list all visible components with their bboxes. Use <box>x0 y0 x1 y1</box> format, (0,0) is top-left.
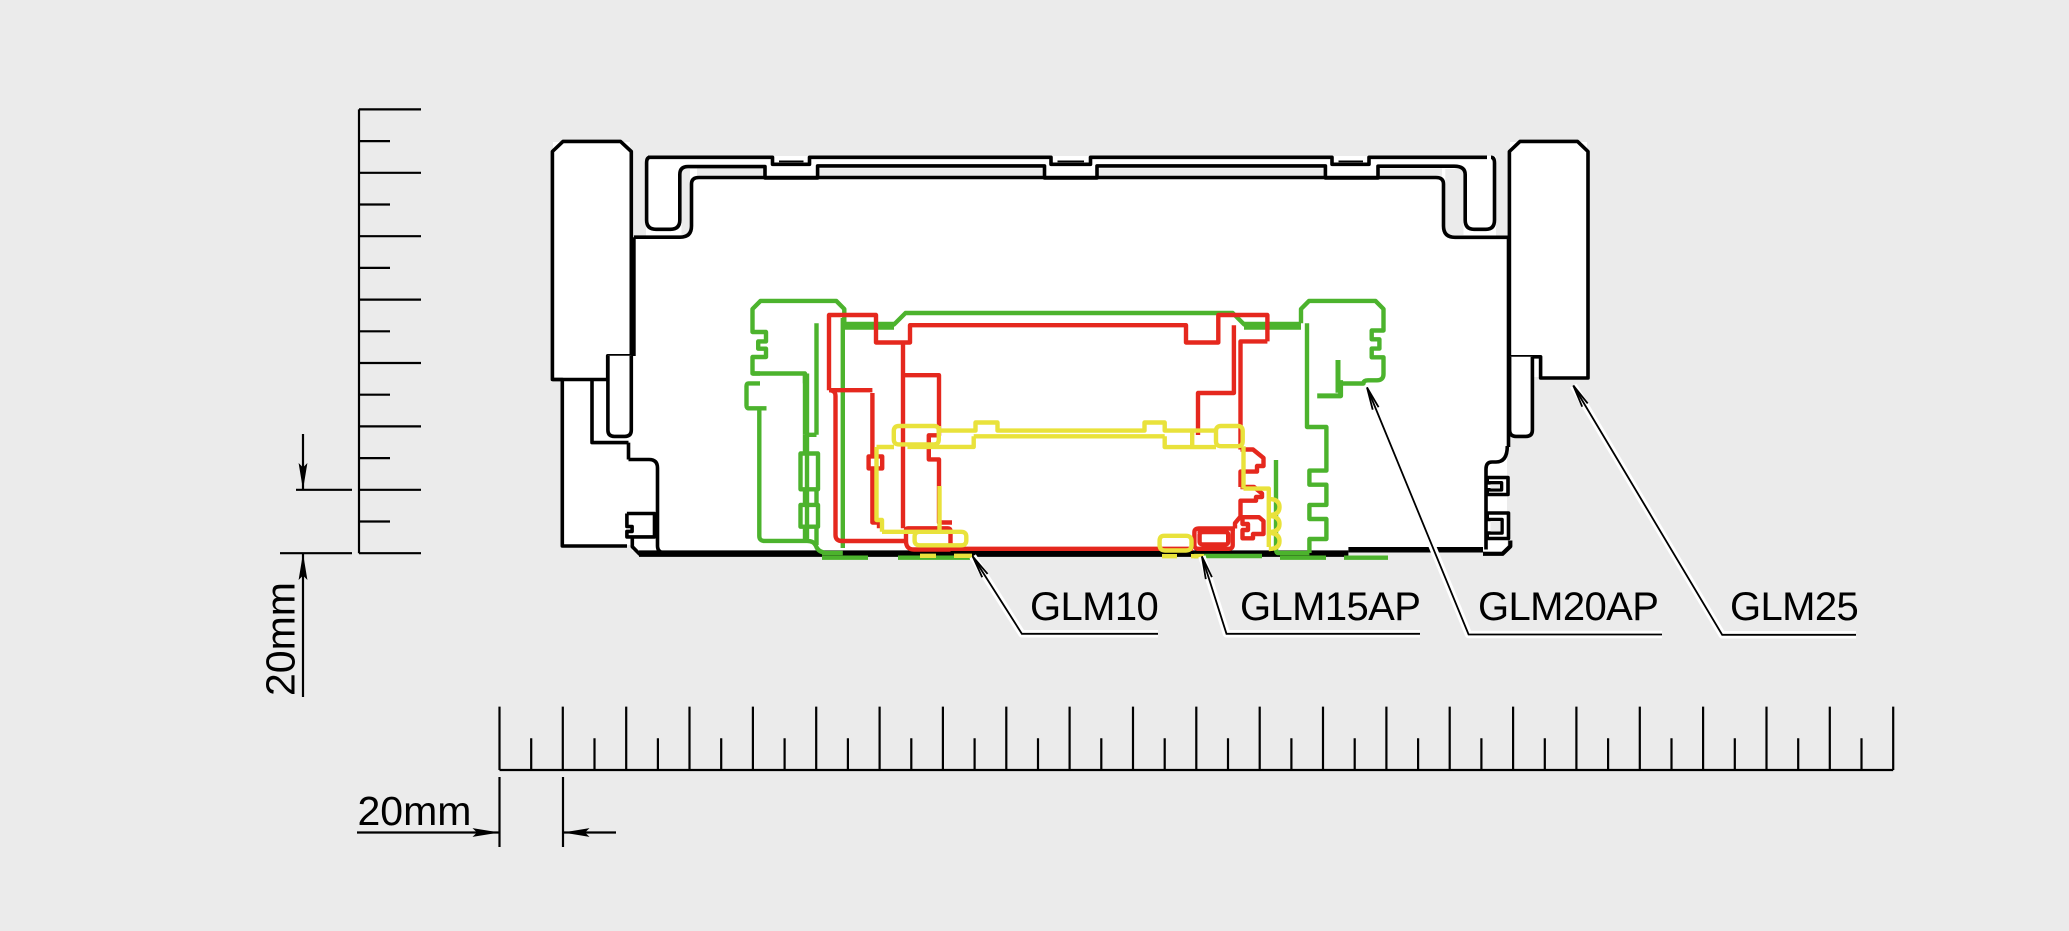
svg-text:GLM10: GLM10 <box>1030 585 1158 629</box>
svg-text:20mm: 20mm <box>258 582 304 696</box>
svg-text:20mm: 20mm <box>358 788 472 834</box>
svg-text:GLM15AP: GLM15AP <box>1240 585 1420 629</box>
svg-text:GLM25: GLM25 <box>1730 585 1858 629</box>
svg-text:GLM20AP: GLM20AP <box>1478 585 1658 629</box>
